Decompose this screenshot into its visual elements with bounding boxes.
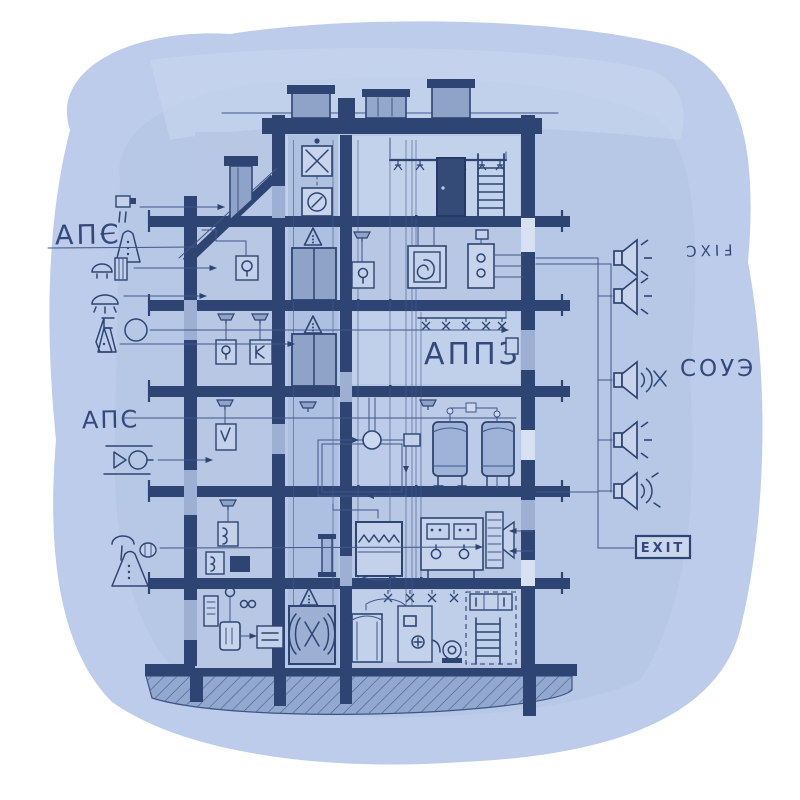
roof-vent-icon bbox=[338, 98, 355, 118]
exit-sign-label: EXIT bbox=[641, 541, 686, 556]
junction-node bbox=[363, 431, 381, 449]
pressure-tank-icon bbox=[433, 422, 467, 486]
aps-top-label: АПС bbox=[55, 219, 122, 251]
mirrored-exit-label: ƆXIℲ bbox=[686, 241, 736, 261]
pressure-tank-icon bbox=[482, 422, 514, 486]
blueprint-drawing: АППЗ bbox=[0, 0, 800, 800]
aps-mid-label: АПС bbox=[82, 405, 140, 434]
basement-elevator-door bbox=[289, 606, 335, 664]
roof-slab bbox=[262, 118, 542, 134]
call-box-icon bbox=[236, 256, 258, 280]
pump-icon bbox=[442, 641, 462, 663]
blueprint-canvas: АППЗ bbox=[0, 0, 800, 800]
roof-vent-icon bbox=[427, 79, 475, 118]
roof-vent-icon bbox=[287, 85, 335, 118]
motor-box-icon bbox=[302, 188, 332, 216]
roof-vent-icon bbox=[362, 89, 410, 118]
exit-sign: EXIT bbox=[636, 536, 690, 558]
wall-bracket bbox=[506, 338, 518, 354]
door bbox=[437, 158, 465, 216]
control-panel-icon bbox=[421, 518, 483, 578]
soue-label: СОУЭ bbox=[680, 356, 756, 382]
wall-cabinet-icon bbox=[470, 594, 512, 610]
device-box-icon bbox=[352, 262, 374, 288]
